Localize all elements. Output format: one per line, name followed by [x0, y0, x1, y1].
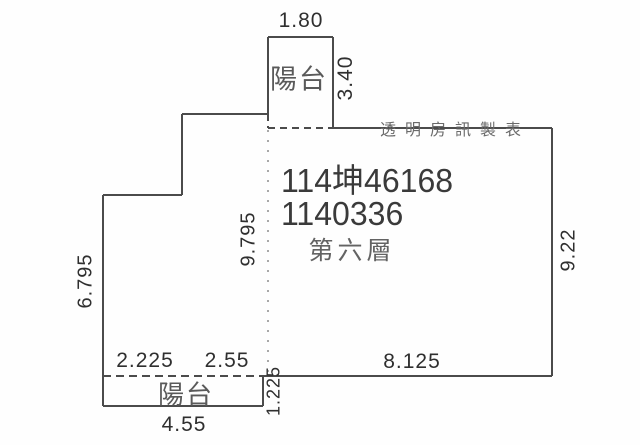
upper-left-step-walls: [103, 114, 268, 195]
unit-id-line2: 1140336: [281, 197, 403, 230]
watermark-text: 透明房訊製表: [380, 116, 530, 140]
top-balcony-dashed-edge: [268, 114, 333, 128]
dim-interior-height: 9.795: [238, 211, 261, 266]
dim-bottom-segment-1: 2.225: [116, 349, 174, 373]
dim-bottom-balcony-width: 4.55: [162, 413, 207, 437]
dim-top-balcony-width: 1.80: [279, 9, 324, 33]
floor-plan: 1.80 陽台 3.40 透明房訊製表 114坤46168 1140336 第六…: [0, 0, 640, 445]
dim-left-wall-height: 6.795: [75, 253, 98, 308]
dim-top-balcony-depth: 3.40: [334, 56, 358, 101]
unit-id-line1: 114坤46168: [281, 164, 453, 197]
top-balcony-label: 陽台: [270, 58, 328, 97]
floor-label: 第六層: [308, 231, 395, 267]
dim-bottom-main-wall: 8.125: [383, 350, 441, 374]
dim-bottom-balcony-depth: 1.225: [264, 366, 285, 416]
bottom-balcony-label: 陽台: [158, 375, 214, 412]
dim-right-wall-height: 9.22: [558, 229, 581, 272]
dim-bottom-segment-2: 2.55: [205, 349, 250, 373]
